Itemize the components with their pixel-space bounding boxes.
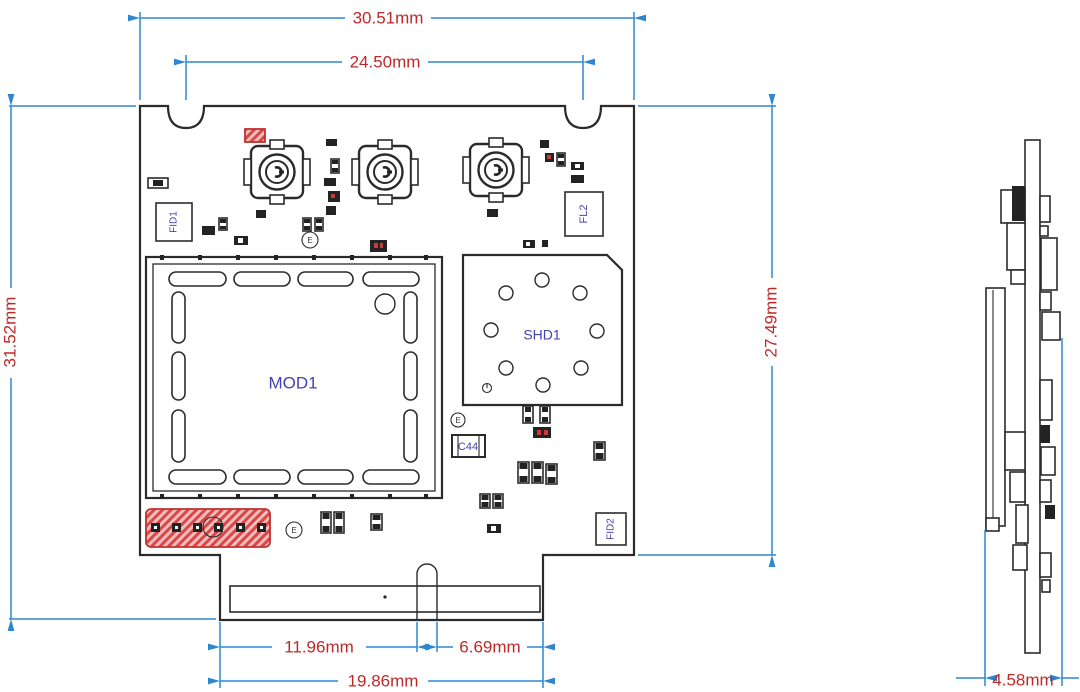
smd-component	[487, 524, 501, 533]
fiducial2-label: FID2	[606, 518, 617, 540]
dim-right-height-text: 27.49mm	[761, 287, 780, 358]
smd-component	[546, 464, 557, 484]
smd-component	[256, 210, 266, 218]
shield-label: SHD1	[523, 327, 561, 343]
dim-right-height: 27.49mm	[638, 106, 783, 555]
smd-component	[328, 191, 340, 202]
dim-side-thickness-text: 4.58mm	[992, 670, 1053, 689]
tab-dot	[383, 595, 386, 598]
smd-component	[371, 514, 382, 530]
smd-component	[326, 206, 336, 215]
side-view	[986, 140, 1060, 653]
dim-tab-width: 19.86mm	[220, 671, 543, 691]
edge-connector-outline	[230, 586, 540, 612]
side-components-right	[1040, 196, 1060, 592]
ufl-connector-3	[463, 138, 529, 202]
smd-component	[326, 139, 337, 146]
pcb-mechanical-drawing-page: MOD1 SHD1	[0, 0, 1080, 692]
smd-component	[480, 494, 490, 508]
smd-component	[594, 442, 605, 460]
fiducial-fid2: FID2	[596, 513, 626, 545]
smd-component	[533, 427, 551, 438]
dim-tab-width-text: 19.86mm	[348, 671, 419, 690]
smd-component	[321, 512, 331, 533]
smd-component	[540, 140, 549, 148]
highlighted-component-small	[245, 129, 265, 142]
smd-component	[202, 226, 215, 235]
capacitor-label: C44	[458, 441, 478, 453]
dim-tab-right-text: 6.69mm	[459, 637, 520, 656]
dim-tab-right-offset: 6.69mm	[437, 622, 543, 688]
smd-component	[493, 494, 503, 508]
smd-component	[148, 178, 168, 188]
side-pcb-body	[1025, 140, 1040, 653]
top-view: MOD1 SHD1	[140, 106, 634, 620]
capacitor-c44: C44	[452, 435, 485, 457]
svg-text:E: E	[291, 526, 296, 535]
filter-fl2: FL2	[565, 192, 603, 236]
smd-component	[487, 209, 498, 217]
highlighted-header-connector	[146, 509, 270, 547]
fiducial1-label: FID1	[169, 211, 180, 233]
smd-component	[331, 159, 339, 173]
smd-component	[303, 218, 311, 231]
dim-tab-left-text: 11.96mm	[284, 637, 354, 656]
module-label: MOD1	[268, 373, 317, 392]
fiducial-fid1: FID1	[156, 203, 192, 241]
svg-text:E: E	[455, 416, 460, 425]
smd-component	[315, 218, 323, 231]
svg-text:E: E	[307, 236, 312, 245]
smd-component	[571, 175, 584, 183]
shield-shd1: SHD1	[463, 255, 622, 423]
ufl-connector-1	[244, 140, 310, 204]
smd-component	[234, 236, 248, 245]
smd-component	[334, 512, 344, 533]
dim-inner-width-text: 24.50mm	[350, 52, 421, 71]
dim-inner-width: 24.50mm	[186, 52, 583, 100]
smd-component	[324, 178, 336, 186]
ufl-connector-2	[352, 140, 418, 204]
smd-component	[370, 240, 387, 252]
pcb-mechanical-drawing: MOD1 SHD1	[0, 0, 1080, 692]
smd-component	[532, 462, 543, 483]
smd-component	[571, 162, 584, 170]
smd-component	[518, 462, 529, 483]
smd-component	[545, 153, 554, 162]
smd-component	[557, 153, 565, 166]
smd-component	[523, 240, 535, 248]
module-mod1: MOD1	[146, 255, 442, 499]
dim-top-width-text: 30.51mm	[353, 8, 424, 27]
smd-component	[219, 218, 227, 230]
smd-component	[542, 240, 548, 247]
filter-label: FL2	[578, 205, 590, 224]
dim-left-height-text: 31.52mm	[0, 297, 19, 368]
side-components-left	[986, 186, 1028, 570]
